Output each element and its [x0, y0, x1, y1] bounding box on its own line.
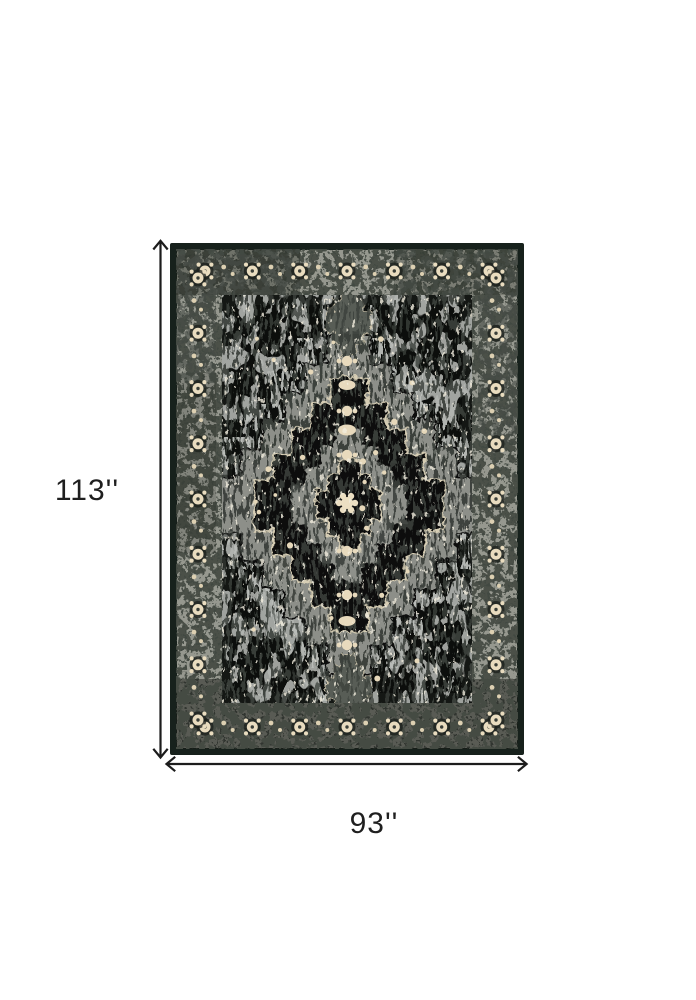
svg-text:113'': 113'' — [55, 474, 119, 507]
svg-text:93'': 93'' — [350, 807, 399, 840]
